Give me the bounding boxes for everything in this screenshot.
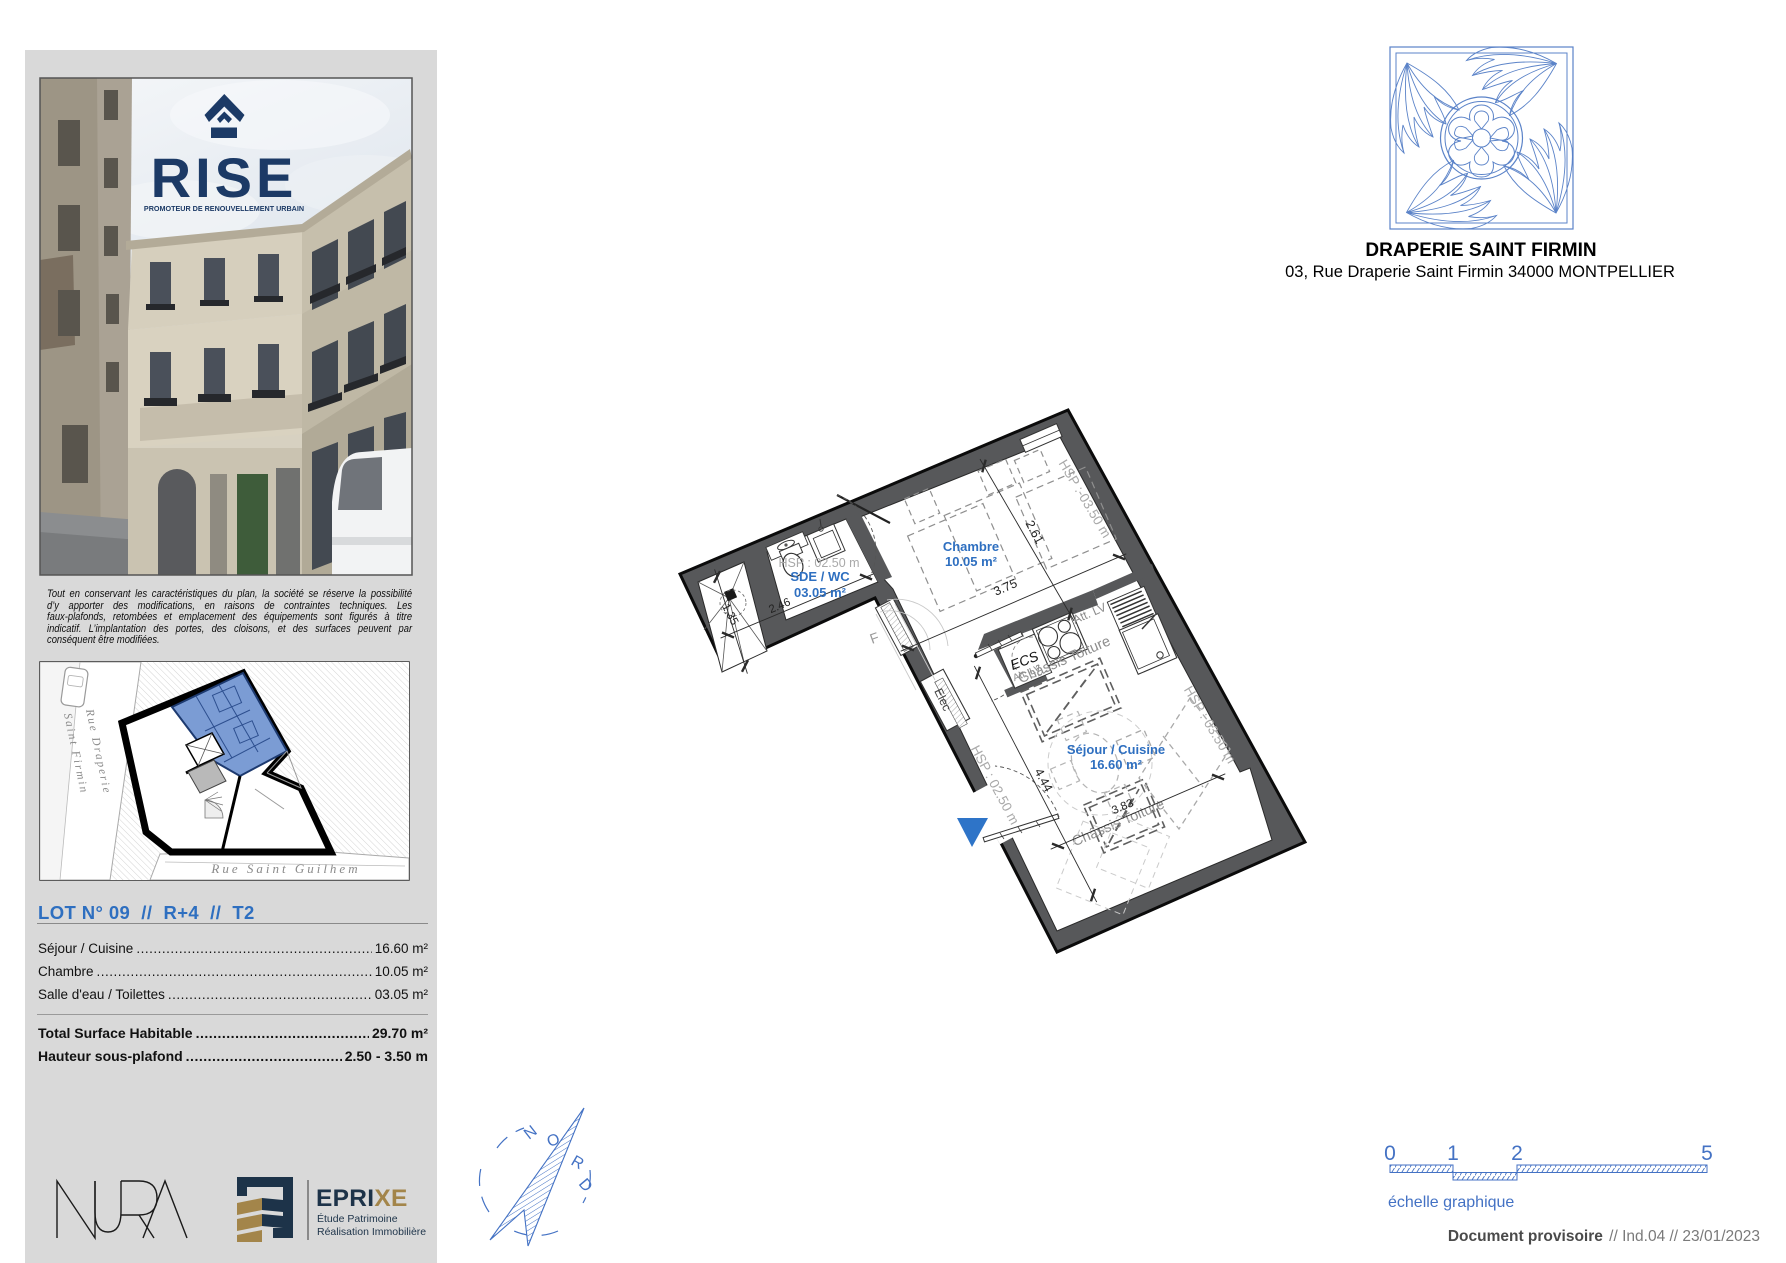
svg-text:SDE / WC: SDE / WC bbox=[790, 569, 850, 584]
svg-text:16.60 m²: 16.60 m² bbox=[1090, 757, 1143, 772]
svg-text:N: N bbox=[521, 1123, 541, 1144]
svg-text:03.05 m²: 03.05 m² bbox=[794, 585, 847, 600]
svg-text:EPRIXE: EPRIXE bbox=[316, 1185, 408, 1212]
svg-text:échelle graphique: échelle graphique bbox=[1388, 1194, 1514, 1211]
svg-text:5: 5 bbox=[1701, 1142, 1713, 1165]
svg-text:Réalisation Immobilière: Réalisation Immobilière bbox=[317, 1226, 426, 1238]
svg-text:Chambre: Chambre bbox=[943, 539, 999, 554]
svg-text:HSP : 02.50 m: HSP : 02.50 m bbox=[778, 556, 859, 570]
svg-text:R: R bbox=[568, 1153, 587, 1174]
svg-text:2: 2 bbox=[1511, 1142, 1523, 1165]
svg-text:RISE: RISE bbox=[151, 146, 298, 209]
svg-text:Étude Patrimoine: Étude Patrimoine bbox=[317, 1212, 398, 1225]
svg-text:PROMOTEUR DE RENOUVELLEMENT UR: PROMOTEUR DE RENOUVELLEMENT URBAIN bbox=[144, 204, 304, 213]
svg-text:Rue Saint Guilhem: Rue Saint Guilhem bbox=[210, 861, 360, 876]
svg-text:0: 0 bbox=[1384, 1142, 1396, 1165]
svg-text:Séjour / Cuisine: Séjour / Cuisine bbox=[1067, 742, 1165, 757]
svg-text:D: D bbox=[575, 1176, 595, 1196]
svg-text:10.05 m²: 10.05 m² bbox=[945, 554, 998, 569]
svg-text:1: 1 bbox=[1447, 1142, 1459, 1165]
svg-text:F: F bbox=[868, 629, 882, 647]
